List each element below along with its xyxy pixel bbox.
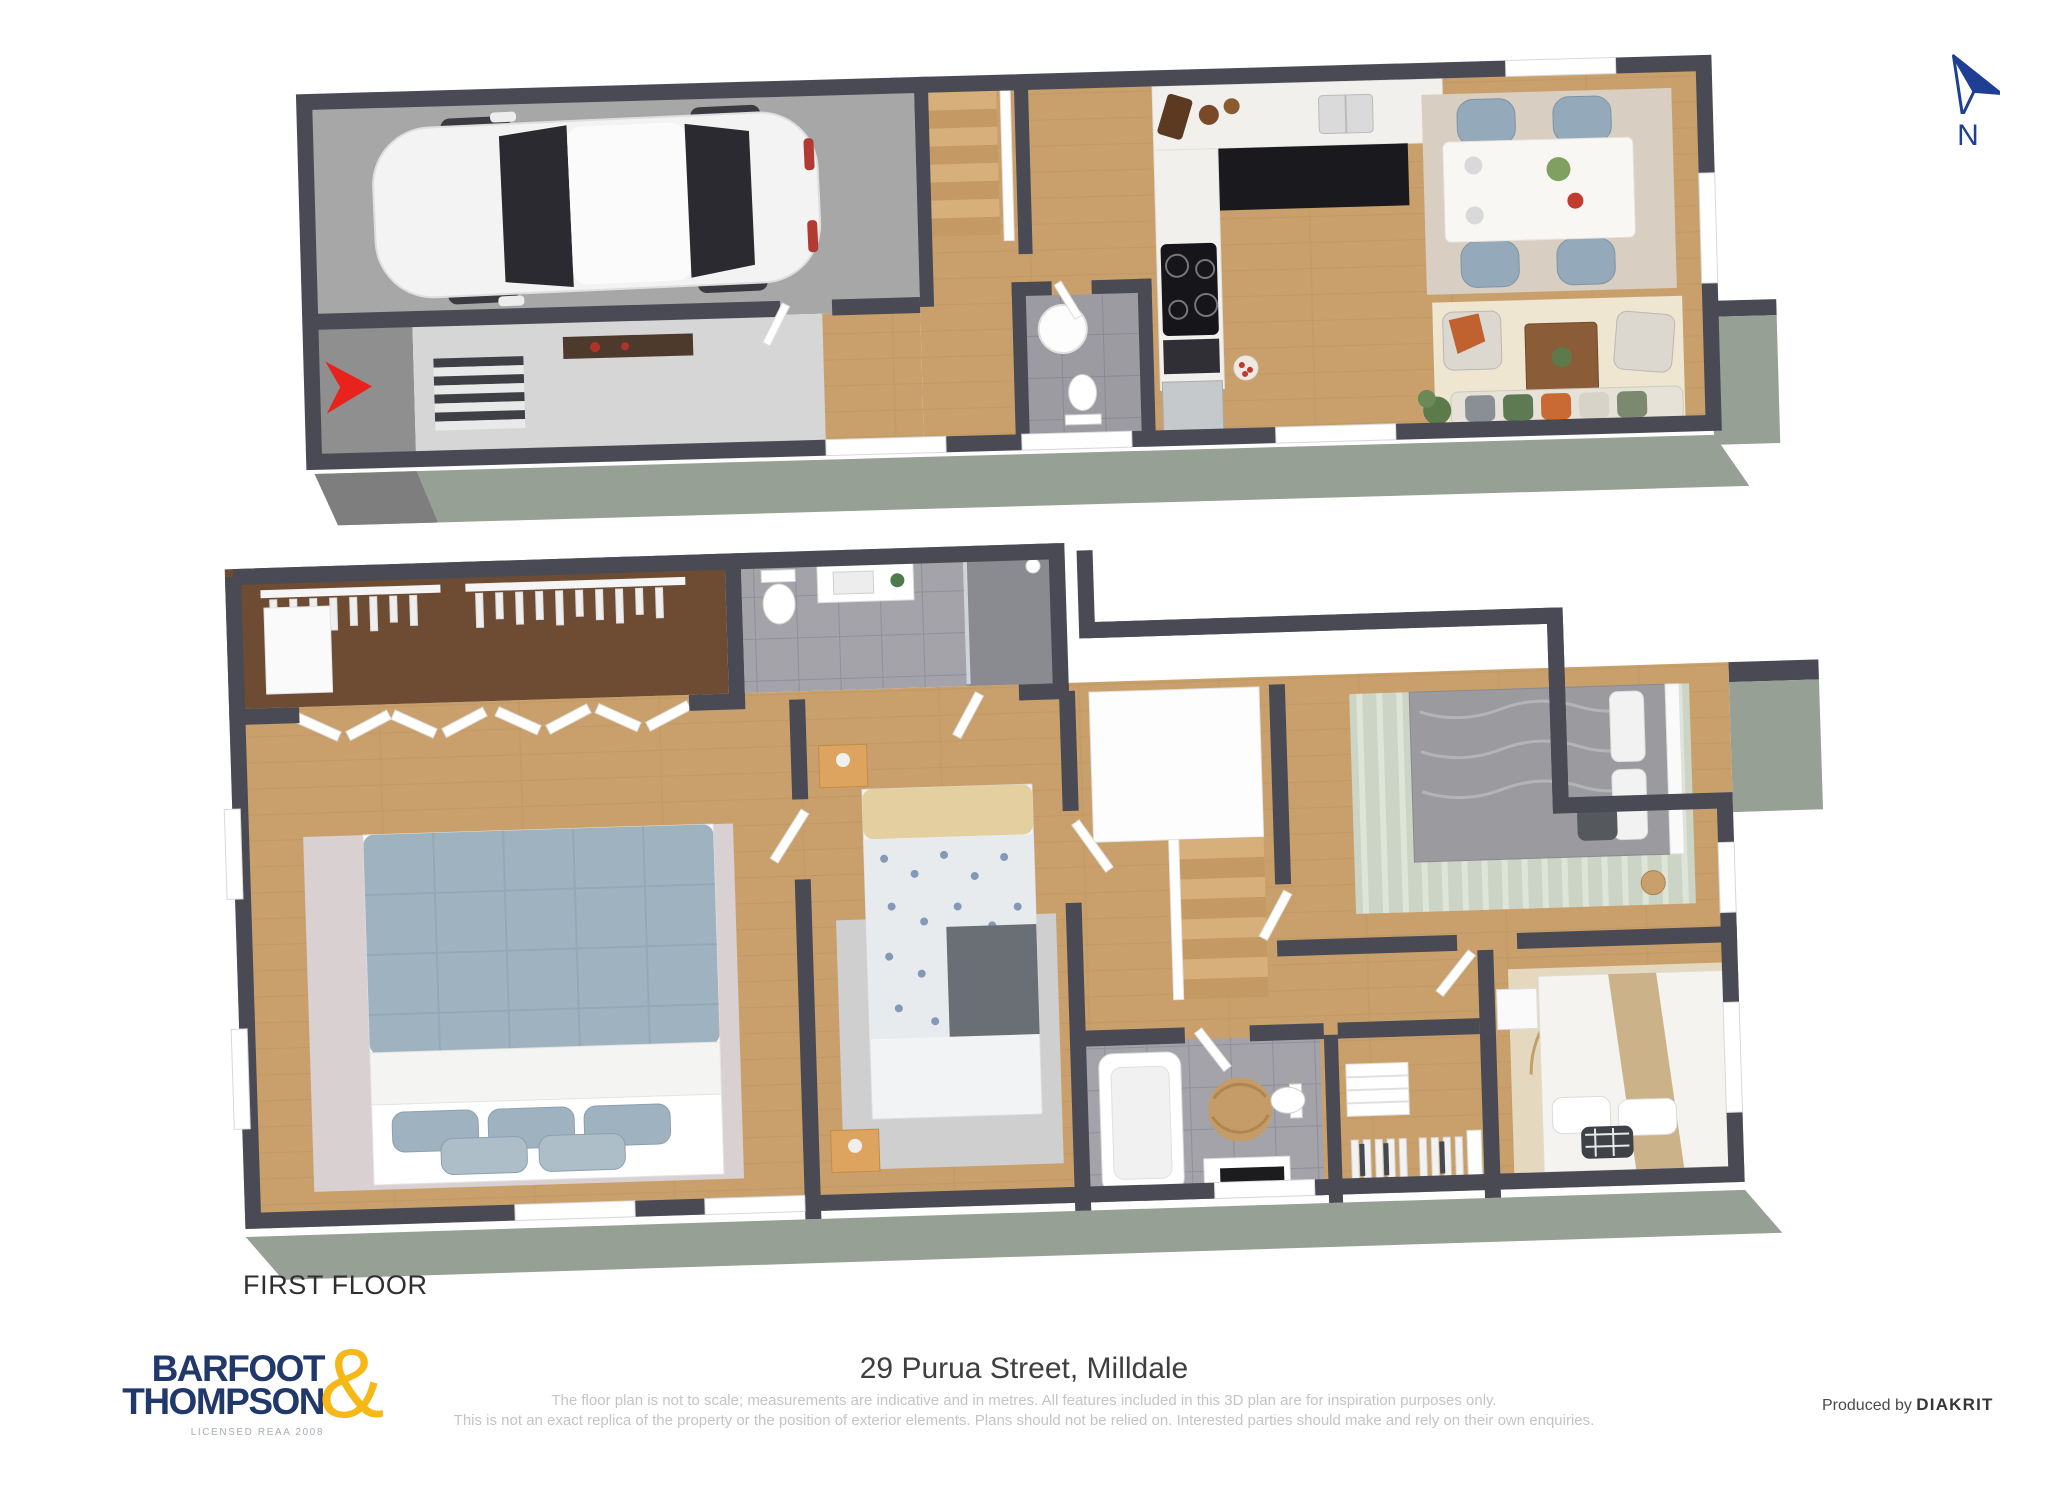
canopy-edge	[1728, 659, 1819, 682]
stairwell-void	[1089, 687, 1264, 842]
living-area	[1415, 296, 1685, 427]
disclaimer-line-2: This is not an exact replica of the prop…	[0, 1412, 2048, 1429]
kitchen-counter	[1152, 78, 1444, 150]
window	[705, 1195, 805, 1214]
first-floor-label: FIRST FLOOR	[243, 1270, 428, 1301]
garage	[304, 85, 920, 328]
window	[1214, 1179, 1314, 1198]
dining-chair	[1556, 238, 1615, 286]
plaid-pillow	[1581, 1125, 1634, 1159]
window	[231, 1029, 250, 1129]
window	[224, 809, 243, 899]
toilet	[1065, 414, 1101, 425]
fridge	[1162, 381, 1223, 435]
dining-chair	[1460, 240, 1519, 288]
dining-table	[1443, 137, 1636, 242]
first-floor-plan	[163, 479, 1846, 1291]
pillow	[441, 1136, 528, 1175]
dining-chair	[1457, 98, 1516, 146]
window	[1723, 1002, 1742, 1112]
deck-wall	[1710, 299, 1776, 317]
north-arrow-icon	[1936, 48, 2000, 114]
toilet	[762, 583, 795, 624]
main-bathroom	[1085, 1035, 1325, 1202]
powder-room	[1011, 279, 1155, 443]
blanket	[946, 924, 1039, 1037]
window	[515, 1201, 635, 1221]
porch-apron	[315, 471, 438, 526]
nightstand	[1497, 988, 1538, 1029]
dining-area	[1421, 88, 1676, 295]
window	[826, 436, 946, 455]
toilet	[1270, 1087, 1305, 1114]
produced-by-text: Produced by	[1822, 1397, 1912, 1414]
floorplan-sheet: N	[0, 0, 2048, 1494]
stairs	[1169, 837, 1269, 1000]
car	[370, 98, 823, 312]
armchair	[1613, 311, 1675, 373]
produced-by: Produced by DIAKRIT	[1822, 1395, 1994, 1415]
oven	[1163, 339, 1220, 375]
window	[1276, 424, 1396, 443]
master-bedroom	[303, 824, 744, 1192]
bedroom-4	[1496, 962, 1741, 1181]
canopy	[1729, 679, 1823, 812]
entry-steps	[433, 356, 525, 430]
producer-name: DIAKRIT	[1916, 1395, 1993, 1414]
entry-porch	[310, 325, 416, 462]
north-label: N	[1928, 119, 2008, 153]
window	[1718, 842, 1736, 912]
shower-head	[1026, 559, 1040, 573]
window	[1022, 431, 1132, 450]
dining-chair	[1552, 96, 1611, 144]
entry-hall	[310, 297, 924, 462]
disclaimer-line-1: The floor plan is not to scale; measurem…	[0, 1392, 2048, 1409]
window	[1505, 57, 1615, 76]
pillow	[1609, 691, 1645, 762]
armchair	[1442, 311, 1502, 371]
window	[1699, 173, 1718, 283]
property-address: 29 Purua Street, Milldale	[0, 1352, 2048, 1386]
pillow	[539, 1133, 626, 1172]
compass: N	[1928, 48, 2008, 153]
drawer-unit	[264, 606, 333, 694]
